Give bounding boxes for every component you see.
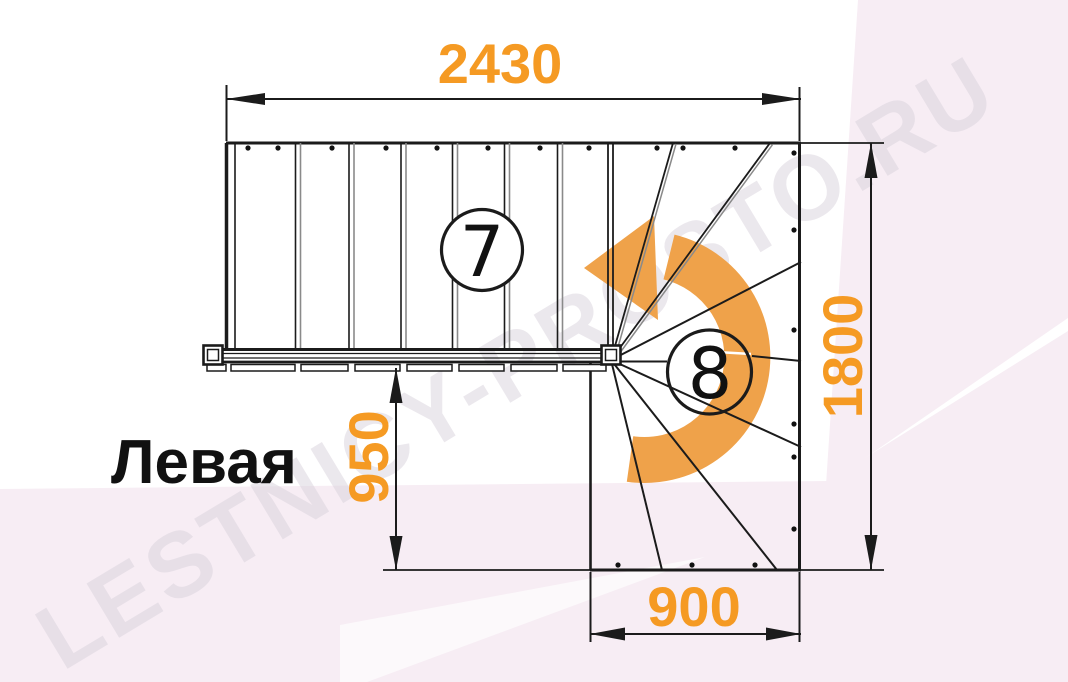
stair-plan-drawing: [0, 0, 1068, 682]
dimension-bottom-label: 900: [647, 579, 740, 635]
tread-nosing-bars: [207, 365, 606, 372]
straight-flight-number: 7: [460, 217, 505, 287]
dimension-lines: [226, 85, 878, 642]
winder-flight-number: 8: [688, 339, 733, 409]
stair-outline: [226, 143, 884, 570]
dimension-top-label: 2430: [438, 36, 563, 92]
orientation-label: Левая: [111, 432, 297, 494]
dimension-right-label: 1800: [815, 294, 871, 419]
stair-plan-page: LESTNICY-PROSTO.RU: [0, 0, 1068, 682]
handrail-band: [204, 350, 621, 363]
dimension-inner-label: 950: [341, 410, 397, 503]
